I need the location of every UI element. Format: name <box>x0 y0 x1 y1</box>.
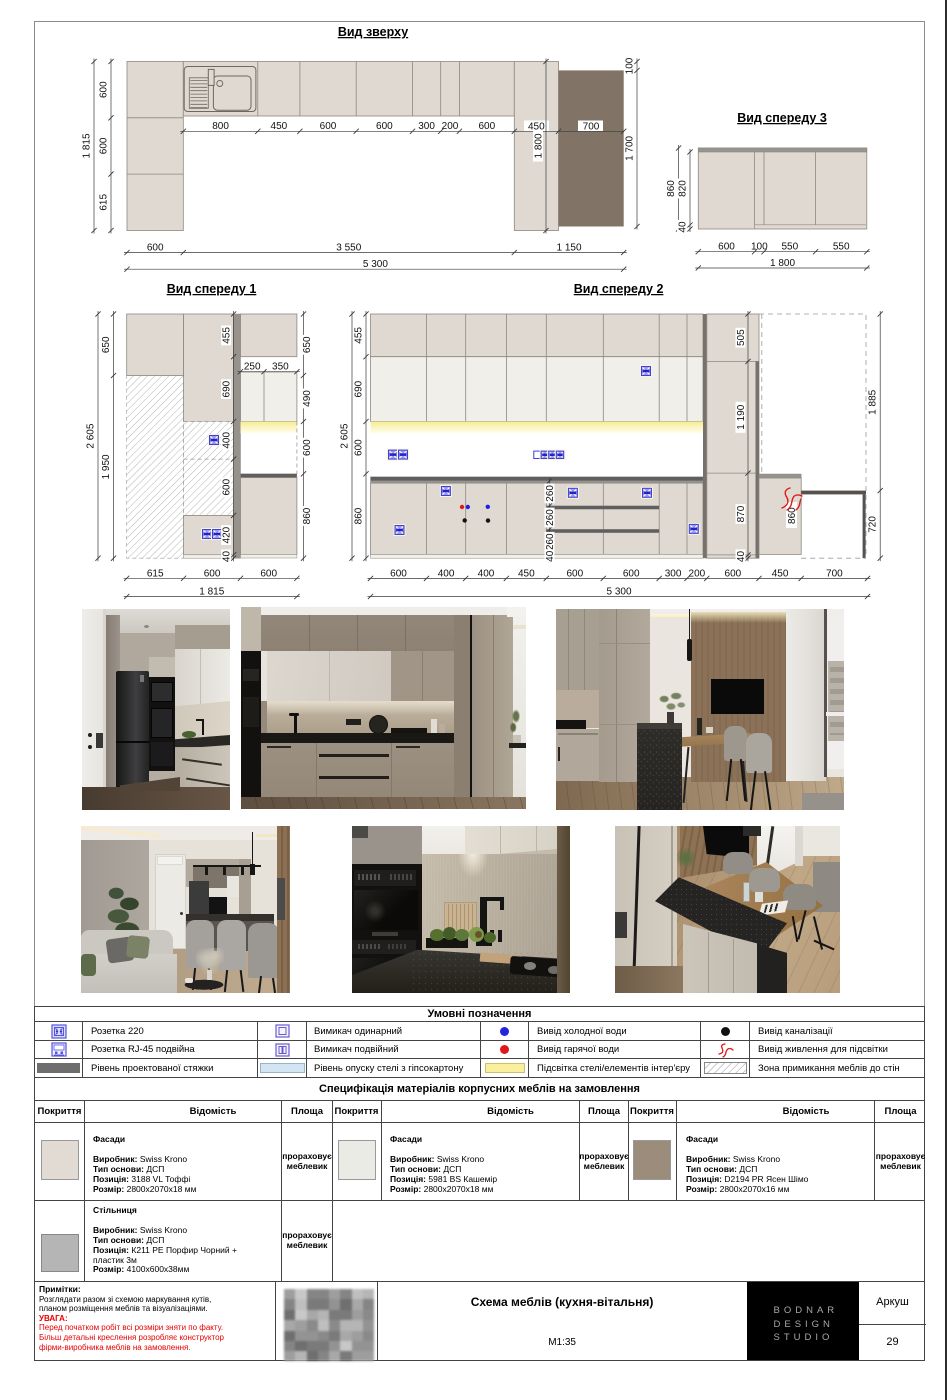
svg-text:260: 260 <box>545 509 556 526</box>
svg-text:2 605: 2 605 <box>340 423 351 448</box>
svg-text:490: 490 <box>302 390 313 407</box>
svg-text:1 950: 1 950 <box>101 454 112 479</box>
svg-text:455: 455 <box>222 327 233 344</box>
svg-text:200: 200 <box>689 568 706 579</box>
svg-text:1 815: 1 815 <box>199 587 224 598</box>
svg-text:600: 600 <box>204 568 221 579</box>
svg-text:Вид спереду 1: Вид спереду 1 <box>167 282 257 296</box>
svg-text:600: 600 <box>147 243 164 254</box>
svg-text:690: 690 <box>222 380 233 397</box>
svg-text:Вид спереду 2: Вид спереду 2 <box>574 282 664 296</box>
svg-text:550: 550 <box>781 242 798 253</box>
svg-text:860: 860 <box>302 507 313 524</box>
svg-text:100: 100 <box>625 57 636 74</box>
svg-text:650: 650 <box>302 336 313 353</box>
svg-text:260: 260 <box>545 485 556 502</box>
svg-text:600: 600 <box>320 121 337 132</box>
svg-text:600: 600 <box>99 81 110 98</box>
svg-text:720: 720 <box>868 516 879 533</box>
svg-text:505: 505 <box>736 329 747 346</box>
svg-text:700: 700 <box>583 122 600 133</box>
svg-text:1 885: 1 885 <box>868 389 879 414</box>
svg-text:2 605: 2 605 <box>86 423 97 448</box>
svg-text:40: 40 <box>545 550 556 562</box>
svg-text:690: 690 <box>354 380 365 397</box>
svg-text:860: 860 <box>666 180 677 197</box>
svg-text:600: 600 <box>623 568 640 579</box>
svg-text:40: 40 <box>736 551 747 563</box>
svg-text:300: 300 <box>665 568 682 579</box>
svg-text:600: 600 <box>99 137 110 154</box>
svg-text:Вид зверху: Вид зверху <box>338 25 408 39</box>
svg-text:40: 40 <box>678 221 689 233</box>
svg-text:550: 550 <box>833 242 850 253</box>
svg-text:420: 420 <box>222 526 233 543</box>
svg-text:1 150: 1 150 <box>556 243 581 254</box>
svg-text:600: 600 <box>725 568 742 579</box>
svg-text:600: 600 <box>718 242 735 253</box>
svg-text:300: 300 <box>418 121 435 132</box>
svg-text:400: 400 <box>438 568 455 579</box>
svg-text:5 300: 5 300 <box>363 259 388 270</box>
svg-text:Вид спереду 3: Вид спереду 3 <box>737 111 827 125</box>
svg-text:450: 450 <box>271 121 288 132</box>
svg-text:40: 40 <box>222 551 233 563</box>
svg-text:650: 650 <box>101 336 112 353</box>
svg-text:1 800: 1 800 <box>534 133 545 158</box>
svg-text:600: 600 <box>222 478 233 495</box>
svg-text:615: 615 <box>147 568 164 579</box>
svg-text:600: 600 <box>354 439 365 456</box>
svg-text:450: 450 <box>518 568 535 579</box>
svg-text:600: 600 <box>566 568 583 579</box>
svg-text:3 550: 3 550 <box>336 243 361 254</box>
svg-text:250: 250 <box>244 361 261 372</box>
svg-text:450: 450 <box>772 568 789 579</box>
svg-text:615: 615 <box>99 194 110 211</box>
svg-text:400: 400 <box>478 568 495 579</box>
svg-text:455: 455 <box>354 327 365 344</box>
svg-text:800: 800 <box>212 121 229 132</box>
svg-text:600: 600 <box>260 568 277 579</box>
svg-text:1 190: 1 190 <box>736 404 747 429</box>
svg-text:870: 870 <box>736 505 747 522</box>
svg-text:600: 600 <box>302 439 313 456</box>
svg-text:600: 600 <box>478 121 495 132</box>
svg-text:820: 820 <box>678 180 689 197</box>
svg-text:600: 600 <box>376 121 393 132</box>
svg-text:200: 200 <box>442 121 459 132</box>
svg-text:260: 260 <box>545 533 556 550</box>
svg-text:5 300: 5 300 <box>606 587 631 598</box>
svg-text:350: 350 <box>272 361 289 372</box>
svg-text:100: 100 <box>751 242 768 253</box>
svg-text:1 700: 1 700 <box>625 135 636 160</box>
svg-text:1 815: 1 815 <box>82 133 93 158</box>
svg-text:1 800: 1 800 <box>770 258 795 269</box>
svg-text:400: 400 <box>222 432 233 449</box>
svg-text:700: 700 <box>826 568 843 579</box>
svg-text:600: 600 <box>390 568 407 579</box>
svg-text:860: 860 <box>354 507 365 524</box>
